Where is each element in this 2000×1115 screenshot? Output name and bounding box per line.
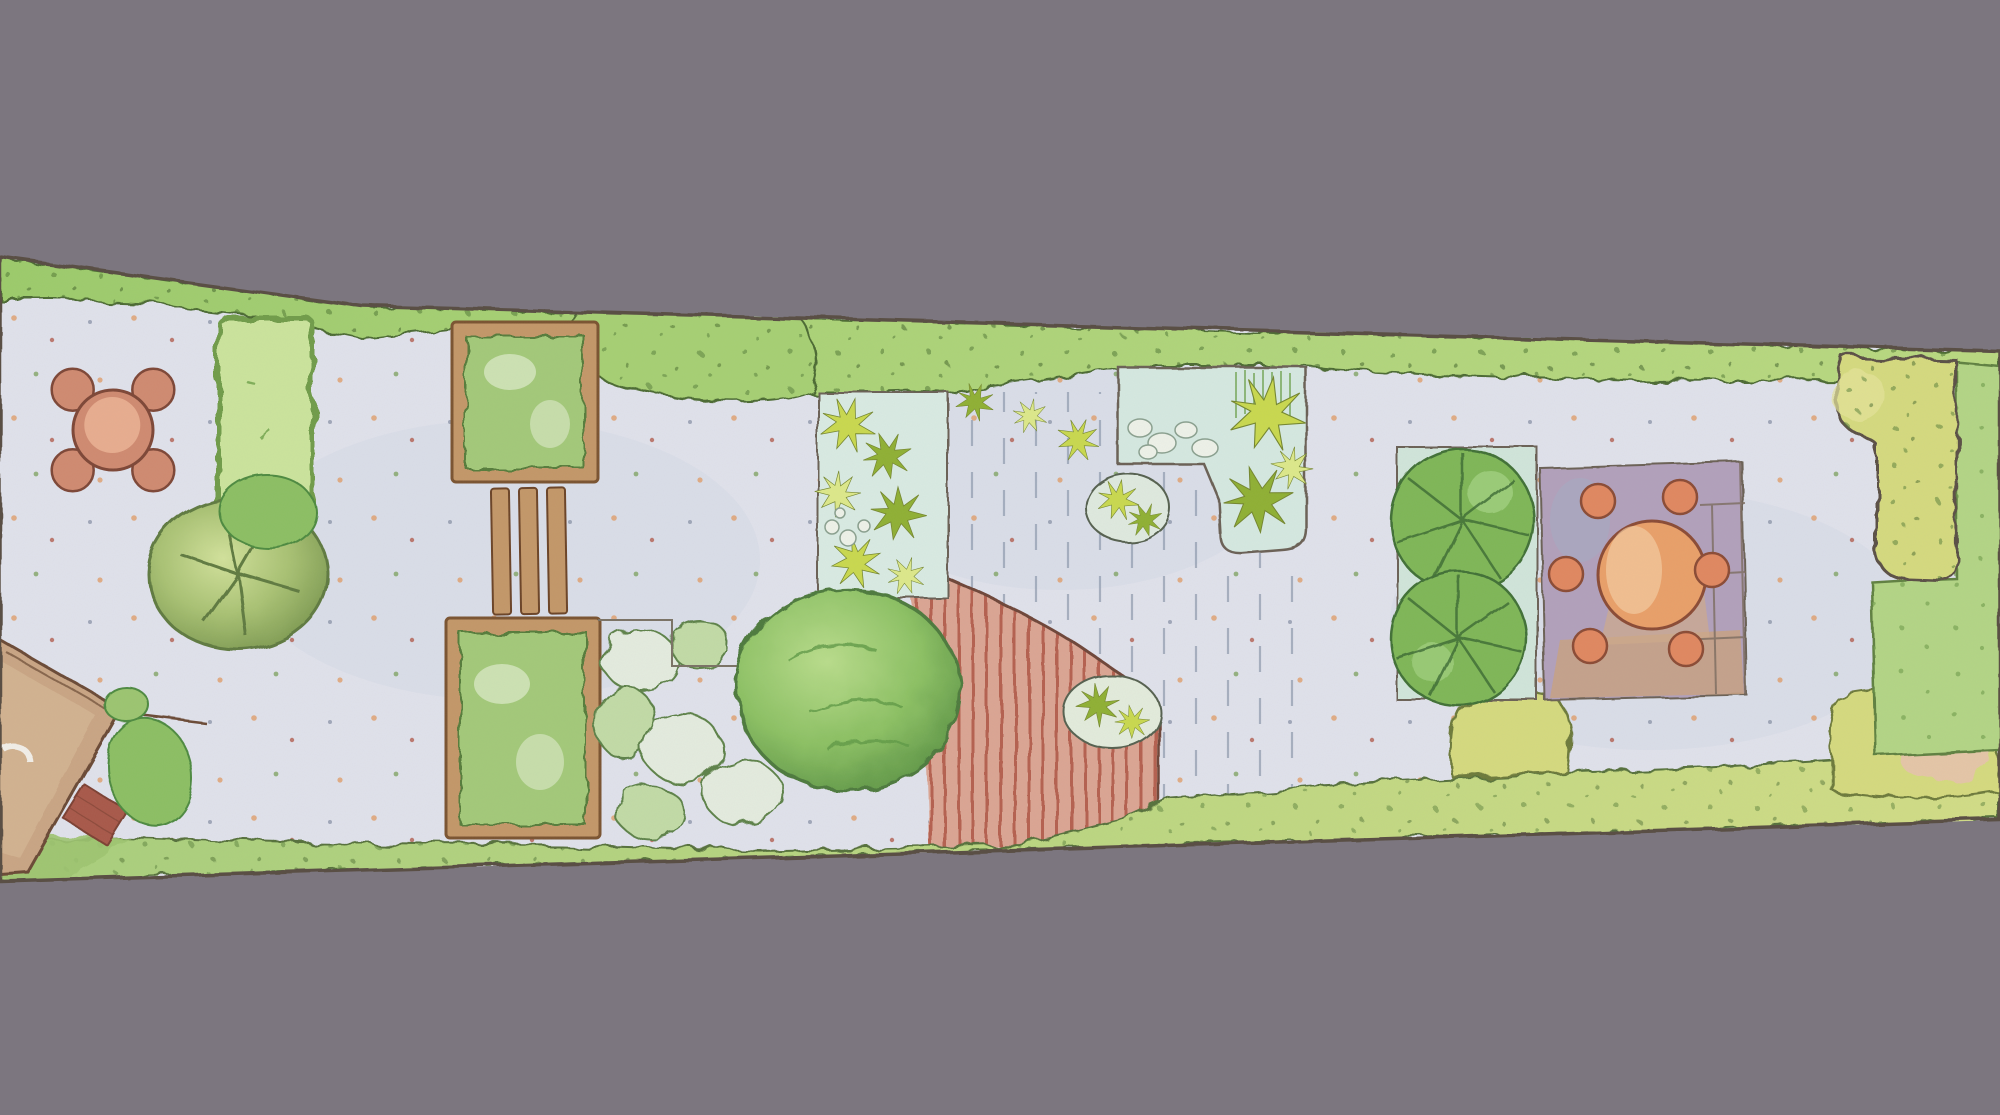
garden-plan-screenshot xyxy=(0,0,2000,1115)
